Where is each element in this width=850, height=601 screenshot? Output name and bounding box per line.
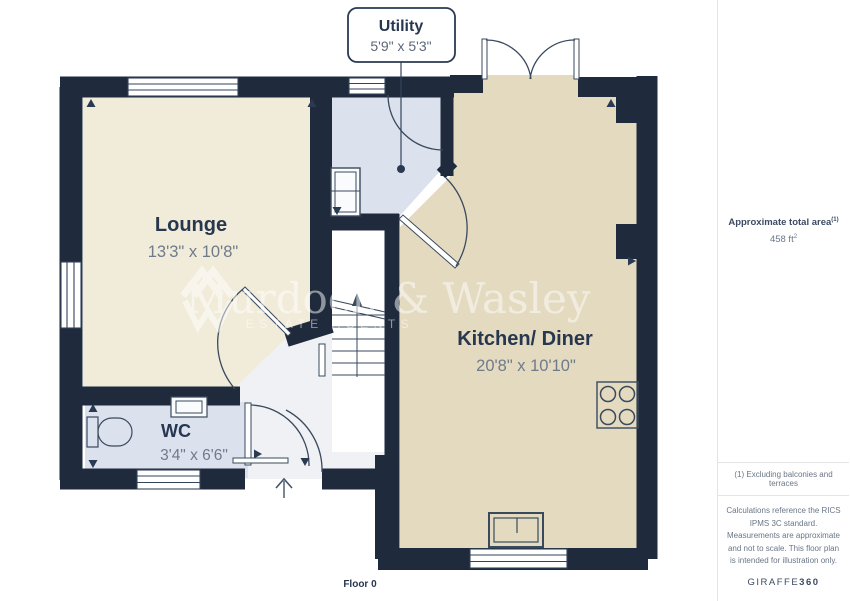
kitchen-dims: 20'8" x 10'10" xyxy=(476,357,576,375)
area-value: 458 ft2 xyxy=(770,234,797,245)
floorplan-page: Lounge 13'3" x 10'8" Kitchen/ Diner 20'8… xyxy=(0,0,850,601)
stairs-floor xyxy=(332,230,385,452)
giraffe360-logo: GIRAFFE360 xyxy=(726,576,841,591)
lounge-top-window xyxy=(128,78,238,96)
lounge-label: Lounge xyxy=(155,214,227,236)
utility-dims: 5'9" x 5'3" xyxy=(370,38,431,54)
watermark-name: Murdoch & Wasley xyxy=(185,274,590,323)
wall-diagonal-joint xyxy=(441,162,453,174)
area-value-text: 458 ft xyxy=(770,234,794,245)
kitchen-bottom-window xyxy=(470,549,567,568)
brand-suffix: 360 xyxy=(799,577,819,588)
area-title-superscript: (1) xyxy=(831,217,838,223)
wc-label: WC xyxy=(161,421,191,441)
utility-label: Utility xyxy=(379,18,424,35)
brand-name: GIRAFFE xyxy=(747,577,799,588)
patio-door-left-leaf xyxy=(482,39,487,79)
floor-label: Floor 0 xyxy=(343,579,377,590)
utility-callout: Utility 5'9" x 5'3" xyxy=(348,8,455,62)
area-title: Approximate total area(1) xyxy=(728,217,838,228)
watermark-tagline: ESTATE AGENTS xyxy=(246,317,414,331)
area-value-superscript: 2 xyxy=(794,234,797,240)
hall-door-leaf xyxy=(319,344,325,376)
area-title-text: Approximate total area xyxy=(728,217,831,228)
wall-notch-lower xyxy=(616,224,639,259)
lounge-left-window xyxy=(61,262,81,328)
disclaimer-text: Calculations reference the RICS IPMS 3C … xyxy=(726,505,841,567)
legal-section: Calculations reference the RICS IPMS 3C … xyxy=(718,496,849,601)
patio-door-right-leaf xyxy=(574,39,579,79)
footnote: (1) Excluding balconies and terraces xyxy=(718,462,849,496)
patio-door-right-arc xyxy=(530,40,575,79)
wall-notch-upper xyxy=(616,97,639,123)
lounge-dims: 13'3" x 10'8" xyxy=(148,243,239,261)
kitchen-label: Kitchen/ Diner xyxy=(457,328,593,350)
wc-dims: 3'4" x 6'6" xyxy=(160,447,228,464)
leader-dot xyxy=(397,165,405,173)
wc-bottom-window xyxy=(137,470,200,489)
info-panel: Approximate total area(1) 458 ft2 (1) Ex… xyxy=(717,0,849,601)
watermark: Murdoch & Wasley ESTATE AGENTS xyxy=(183,271,591,331)
patio-door-left-arc xyxy=(486,40,531,79)
entrance-arrow-icon xyxy=(276,479,292,498)
floor-plan-drawing: Lounge 13'3" x 10'8" Kitchen/ Diner 20'8… xyxy=(0,0,718,601)
area-section: Approximate total area(1) 458 ft2 xyxy=(718,0,849,462)
utility-top-window xyxy=(349,78,385,94)
front-door-leaf xyxy=(233,458,288,463)
wc-door-leaf xyxy=(245,403,251,465)
